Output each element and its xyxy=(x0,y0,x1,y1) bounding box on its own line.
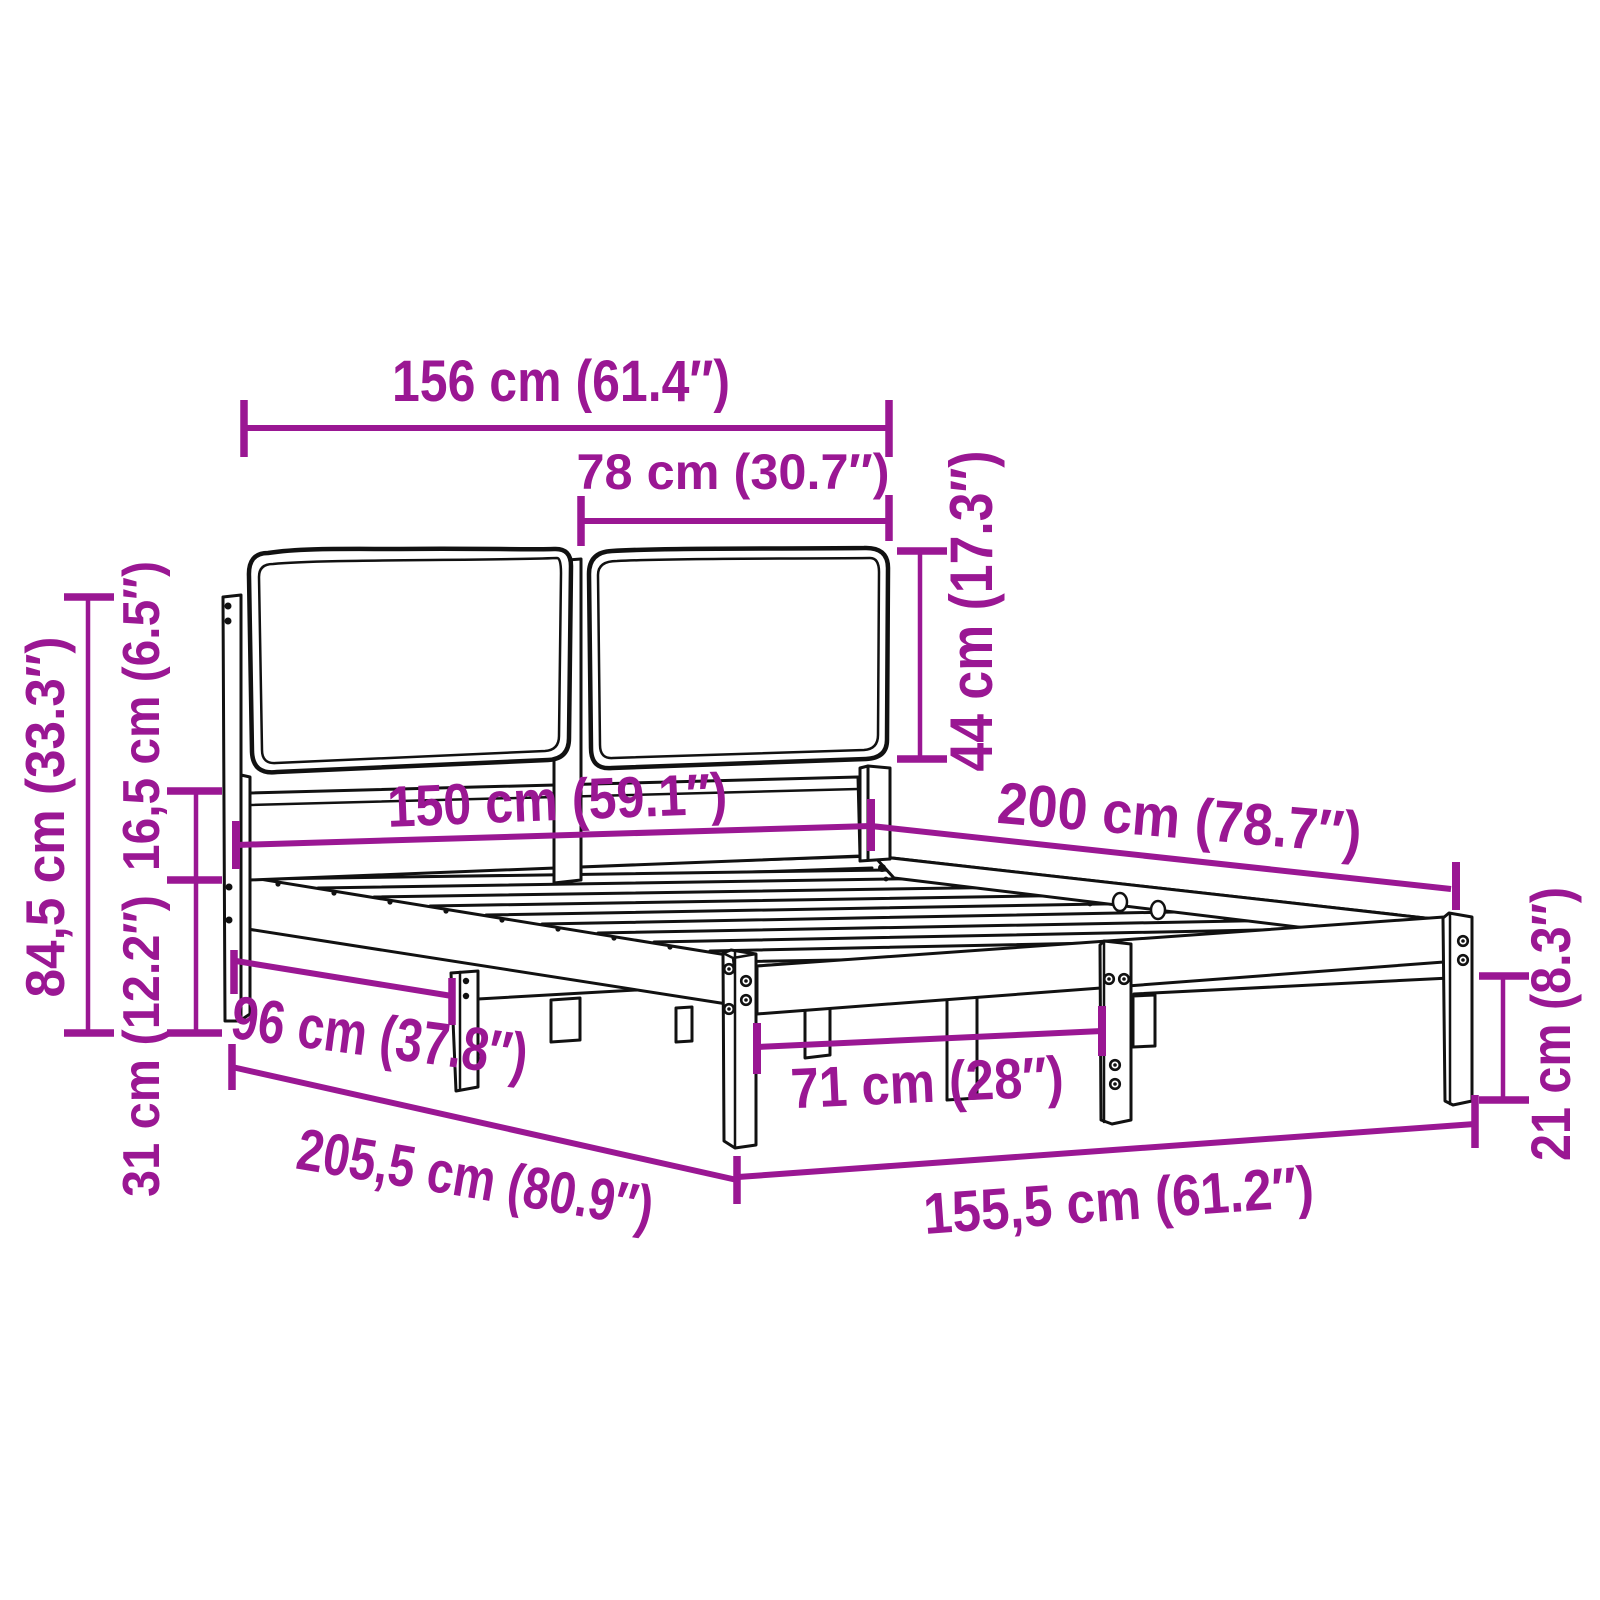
svg-text:84,5 cm (33.3″): 84,5 cm (33.3″) xyxy=(14,637,76,998)
svg-text:31 cm (12.2″): 31 cm (12.2″) xyxy=(113,895,171,1197)
svg-text:78 cm (30.7″): 78 cm (30.7″) xyxy=(577,444,890,500)
svg-text:150 cm (59.1″): 150 cm (59.1″) xyxy=(386,761,728,840)
svg-text:71 cm (28″): 71 cm (28″) xyxy=(789,1045,1065,1121)
svg-text:44 cm (17.3″): 44 cm (17.3″) xyxy=(938,451,1005,772)
svg-text:156 cm (61.4″): 156 cm (61.4″) xyxy=(392,349,730,414)
svg-text:21 cm (8.3″): 21 cm (8.3″) xyxy=(1519,887,1582,1161)
svg-text:16,5 cm (6.5″): 16,5 cm (6.5″) xyxy=(113,561,171,871)
